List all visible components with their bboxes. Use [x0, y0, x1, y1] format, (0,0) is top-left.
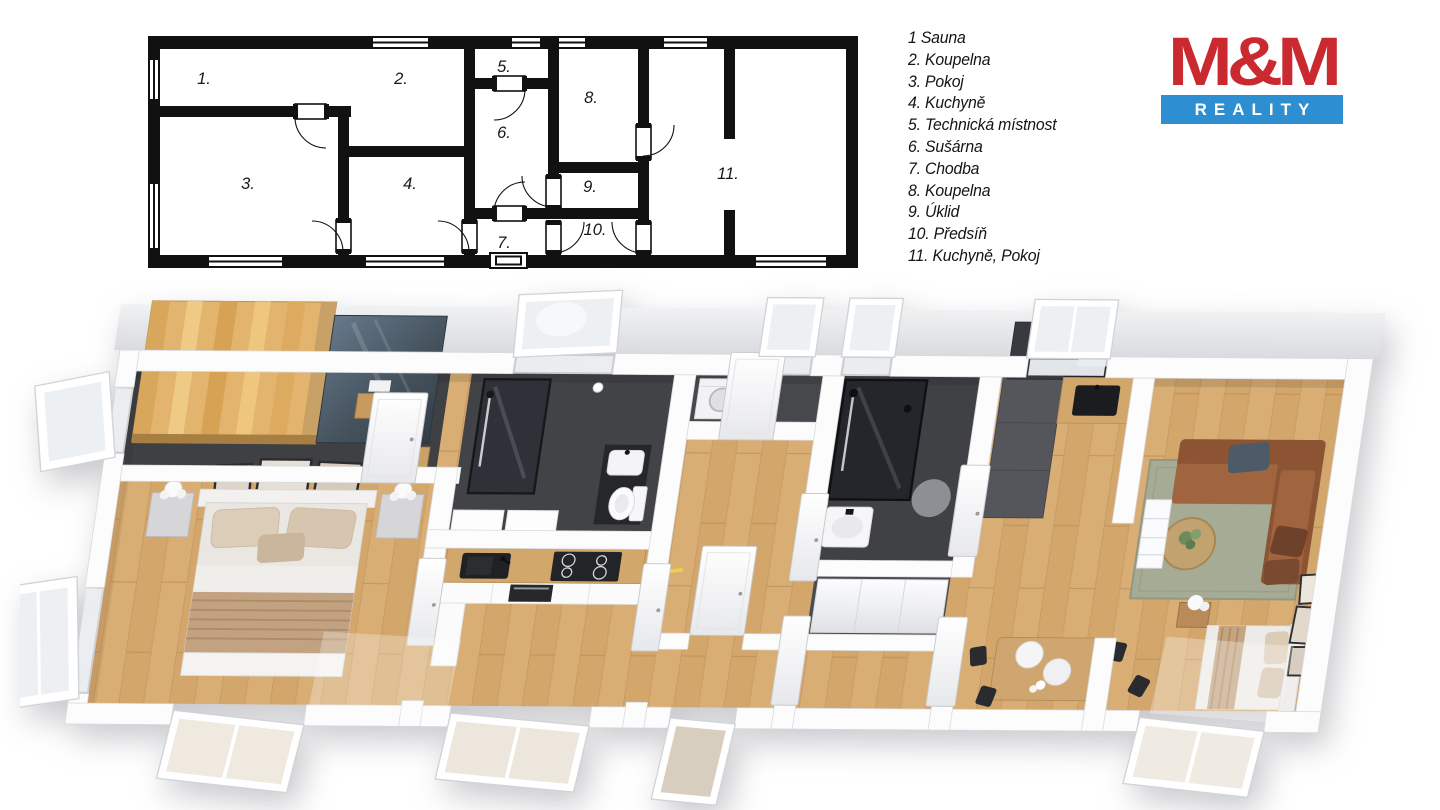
window-panel: [435, 713, 589, 792]
cooktop: [550, 552, 622, 582]
legend-item: 6. Sušárna: [908, 136, 1056, 158]
oven: [508, 585, 553, 602]
entrance-door: [651, 718, 735, 805]
room-label-1: 1.: [197, 70, 211, 88]
legend-item: 8. Koupelna: [908, 180, 1056, 202]
mm-reality-logo: M&M REALITY: [1161, 30, 1343, 124]
room-label-2: 2.: [393, 70, 408, 88]
legend-item: 7. Chodba: [908, 158, 1056, 180]
room-label-5: 5.: [497, 58, 511, 76]
window-frame: [841, 298, 903, 357]
real-estate-floorplan-page: 1. 2. 3. 4. 5. 6. 7. 8. 9. 10. 11. 1 Sau…: [0, 0, 1440, 810]
window-frame: [513, 290, 622, 357]
room-label-9: 9.: [583, 178, 597, 196]
window-panel: [1123, 717, 1264, 797]
room-label-8: 8.: [584, 89, 598, 107]
legend-item: 2. Koupelna: [908, 49, 1056, 71]
kitchen-sink-2: [1072, 385, 1121, 416]
room-label-3: 3.: [241, 175, 255, 193]
window-frame: [1027, 299, 1119, 358]
sauna-towel: [368, 380, 391, 392]
floor-plan-3d: [20, 215, 1420, 810]
window-frame: [759, 298, 824, 357]
legend-item: 1 Sauna: [908, 27, 1056, 49]
wardrobe: [810, 579, 948, 633]
logo-mm-text: M&M: [1145, 30, 1360, 92]
cushion-blue: [1228, 442, 1270, 474]
room-label-4: 4.: [403, 175, 417, 193]
window-frame: [20, 577, 79, 710]
legend-item: 3. Pokoj: [908, 71, 1056, 93]
room-label-6: 6.: [497, 124, 511, 142]
room-label-11: 11.: [717, 165, 739, 183]
glass-pane: [1152, 638, 1293, 721]
glass-pane: [310, 633, 460, 717]
legend-item: 5. Technická místnost: [908, 114, 1056, 136]
window-panel: [156, 710, 303, 792]
legend-item: 4. Kuchyně: [908, 92, 1056, 114]
window-frame: [35, 372, 115, 472]
